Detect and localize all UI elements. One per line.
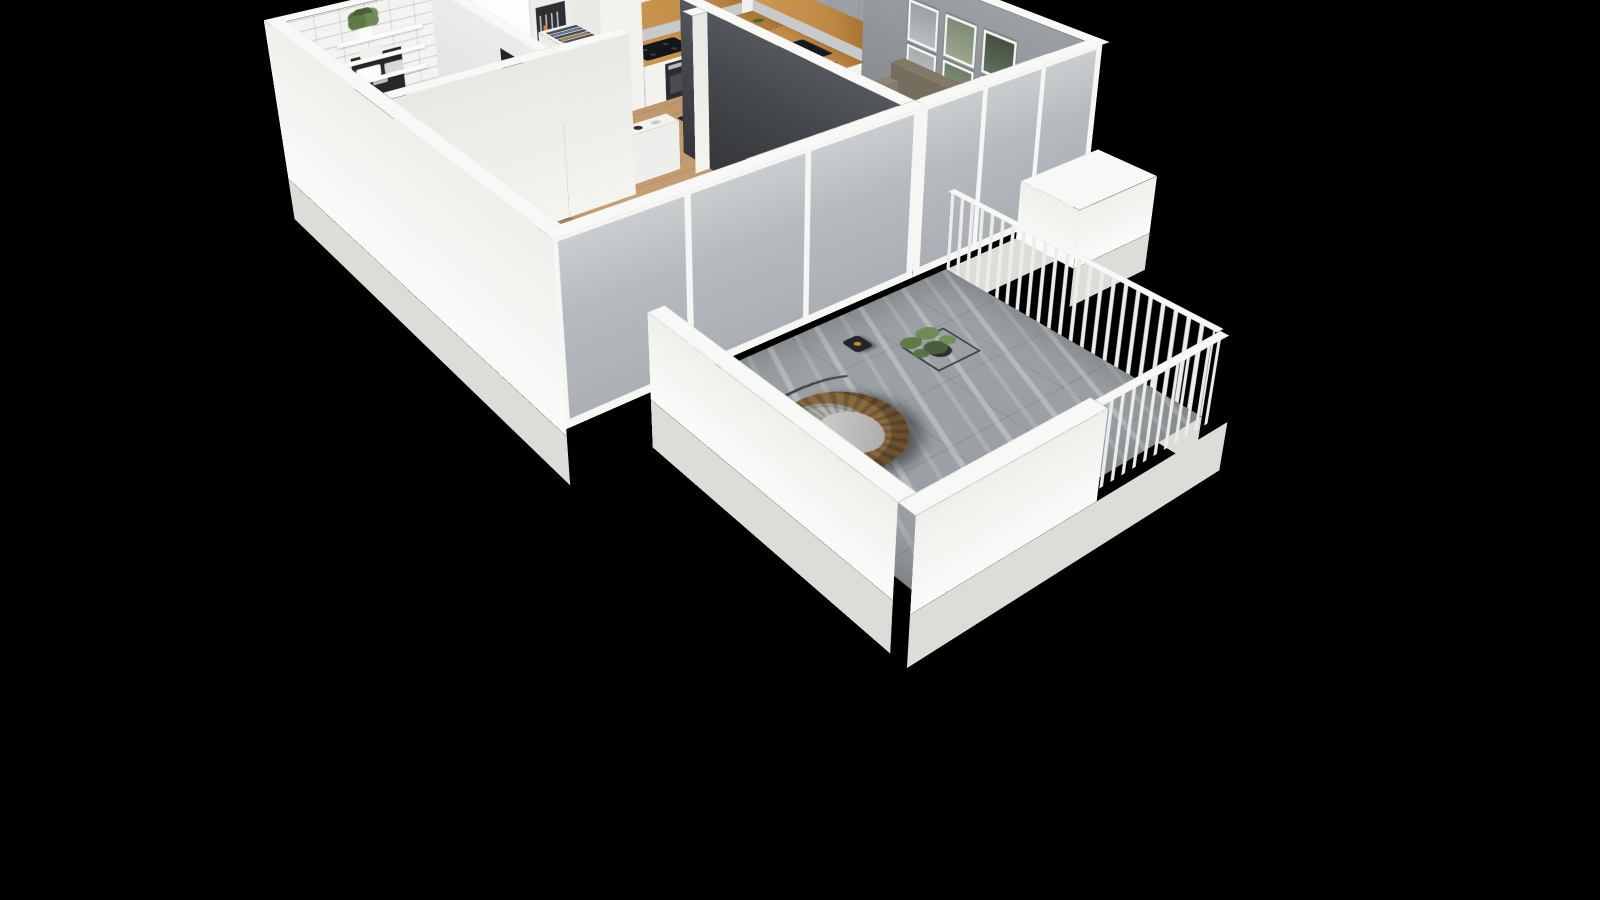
apartment-3d-model <box>310 48 1302 612</box>
camera-viewport <box>0 0 1600 900</box>
bedroom-north-wall-b <box>692 12 710 174</box>
black-background <box>0 0 1600 900</box>
window-mullion <box>803 142 812 325</box>
decor-bowl <box>649 120 663 126</box>
decor-vase <box>632 125 645 131</box>
picture-art <box>909 2 936 49</box>
lantern-candle <box>852 341 862 347</box>
bedroom-north-wall-a <box>559 33 636 217</box>
picture-art <box>945 17 974 65</box>
